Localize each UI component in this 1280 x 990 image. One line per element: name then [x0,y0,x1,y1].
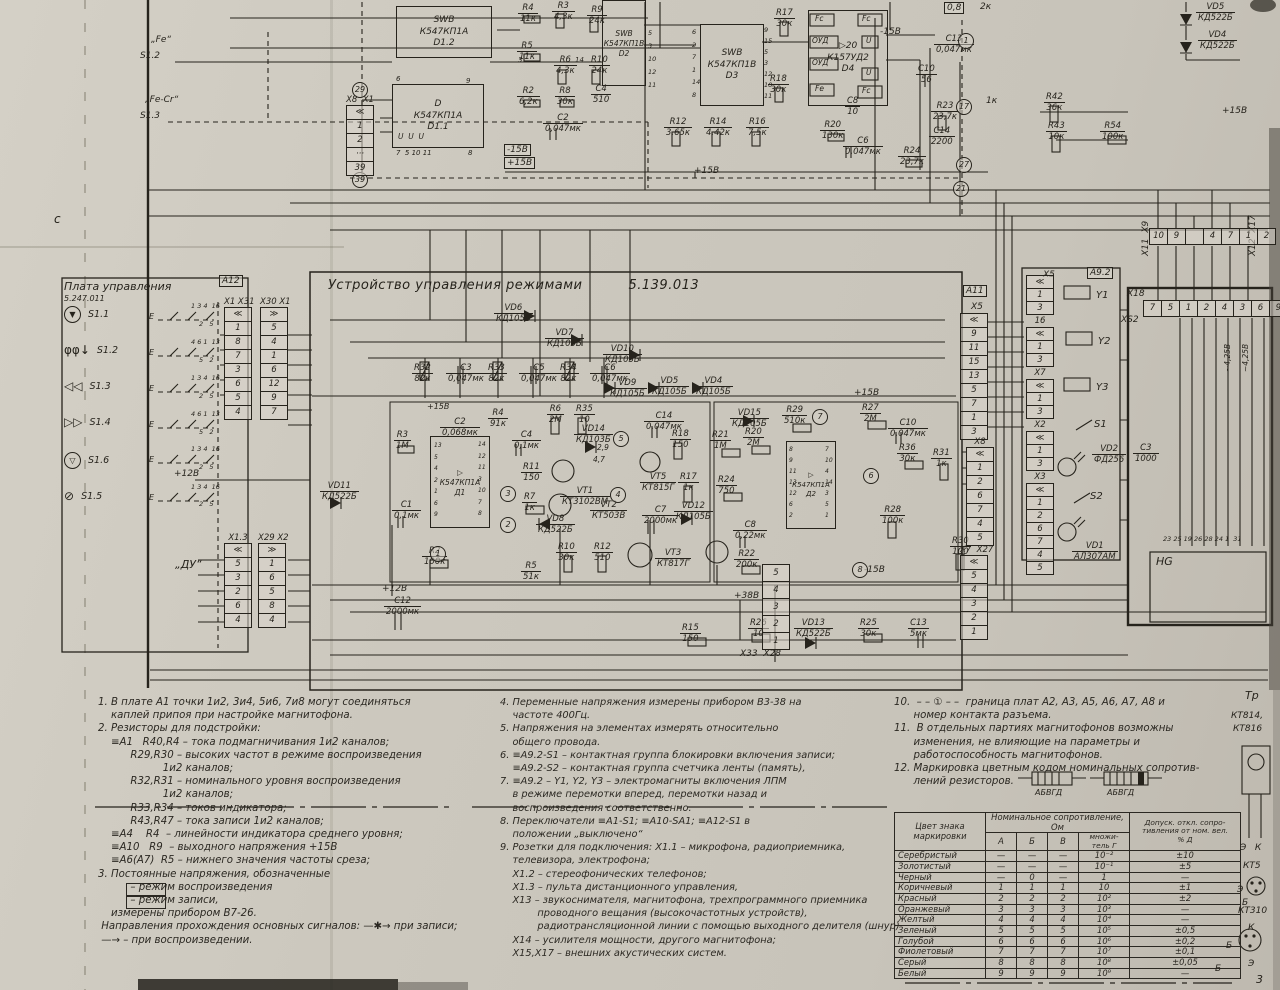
color-code-value: ±0,1 [1130,947,1241,958]
component-label: R3382к [486,363,507,384]
connector: 1094712 [1150,228,1276,245]
connector-pin: 3 [1026,457,1054,471]
connector-pin: 4 [1026,548,1054,562]
component-ref: R25 [858,618,879,629]
component-value: 0,1мк [512,441,541,451]
component-value: КТ815Г [640,483,676,493]
connector-pin: 5 [224,557,252,572]
text-label: 4 6 1 13 [191,411,220,418]
notes-column-2: 4. Переменные напряжения измерены прибор… [500,696,924,960]
component-ref: C6 [843,136,883,147]
color-code-value: 10⁷ [1079,947,1130,958]
component-label: R1830к [768,74,789,95]
component-value: 7,5к [746,128,769,138]
connector-pin: 6 [1026,522,1054,536]
component-ref: C14 [644,411,684,422]
text-label: „Fe“ [151,35,171,45]
contact-number: 1 [958,33,974,49]
connector-section-label: Х3 [1026,470,1054,484]
switch-icon: ▼ [64,306,81,323]
component-value: 30к [858,629,879,639]
color-code-value: — [1130,904,1241,915]
component-label: R171к [678,472,699,493]
color-code-value: — [1017,862,1048,873]
component-value: 30к [774,19,795,29]
switch-s1-4: ▷▷S1.4 [64,416,111,428]
text-label: S1.2 [140,51,160,61]
switch-s1-5: ⊘S1.5 [64,490,102,502]
color-code-value: ±0,5 [1130,925,1241,936]
component-ref: C5 [519,363,559,374]
notes-column-1: 1. В плате А1 точки 1и2, 3и4, 5и6, 7и8 м… [98,696,512,947]
component-ref: R54 [1100,121,1125,132]
text-label: 7 10 4 14 3 5 1 [825,444,833,521]
component-value: 82к [486,374,507,384]
record-mode-box [126,896,166,909]
ic-label-line: К157УД2 [827,53,869,64]
component-ref: C12 [384,596,421,607]
component-value: 5мк [908,629,929,639]
color-code-value: 10⁵ [1079,925,1130,936]
component-ref: VD5 [1196,2,1235,13]
connector-pin: 1 [1026,496,1054,510]
text-label: Fc [815,15,823,24]
contact-number: 17 [956,99,972,115]
text-label: Y1 [1096,290,1108,302]
connector-pin: 5 [960,383,988,398]
connector-pin: 4 [1215,300,1234,317]
text-label: 2 5 [199,393,213,400]
component-label: VD2ФД256 [1092,444,1126,465]
connector-pin [1185,228,1204,245]
component-ref: R15 [680,623,701,634]
component-ref: C14 [929,126,955,137]
color-code-value: 4 [986,915,1017,926]
component-value: 2М [547,415,564,425]
text-label: S2 [1090,491,1103,503]
text-label: К [1248,923,1254,933]
text-label: Б [1226,941,1232,951]
component-label: R71к [522,492,537,513]
connector-pin: 1 [1026,444,1054,458]
color-table-row: Фиолетовый77710⁷±0,1 [895,947,1241,958]
connector-pin: 6 [258,571,286,586]
ic-label-line: К547КП1В [708,60,757,71]
component-ref: VD10 [603,344,642,355]
component-ref: VD8 [536,514,575,525]
component-ref: VD15 [730,408,769,419]
switch-s1-3: ◁◁S1.3 [64,380,111,392]
playback-mode-box [126,883,166,896]
component-value: 1к [931,459,952,469]
connector: Х30 Х1≫54161297 [260,298,291,420]
color-table-row: Желтый44410⁴— [895,915,1241,926]
text-label: Е [149,312,154,321]
text-label: 6 [396,75,400,83]
connector-pin: 3 [762,598,790,616]
component-ref: R17 [678,472,699,483]
component-label: C135мк [908,618,929,639]
text-label: Х5 [971,302,983,312]
switch-label: S1.3 [89,381,110,392]
component-label: R3482к [558,363,579,384]
connector-name: Х30 Х1 [260,298,291,307]
component-label: R924к [587,5,607,26]
component-label: R167,5к [746,117,769,138]
connector-pin: 6 [966,489,994,504]
text-label: 1к [986,96,997,106]
component-ref: R24 [898,146,926,157]
component-label: C122000мк [384,596,421,617]
connector-pin: ≪ [346,105,374,120]
connector: ≪91115135713 [960,314,988,440]
component-ref: R3 [552,1,575,12]
component-label: R144,42к [704,117,732,138]
component-value: КТ503В [590,511,627,521]
component-value: 30к [897,454,918,464]
color-code-value: 10⁸ [1079,957,1130,968]
ic-label-line: D3 [726,71,739,82]
color-code-value: 3 [1048,904,1079,915]
ic-label-line: D4 [842,64,855,75]
contact-number: 21 [953,181,969,197]
color-code-value: 6 [986,936,1017,947]
control-board-number: 5.247.011 [64,294,105,303]
component-label: R491к [488,408,508,429]
connector-pin: ≪ [1026,327,1054,341]
component-ref: VT3 [655,548,691,559]
connector-pin: ··· [346,147,374,162]
switch-s1-6: ▽S1.6 [64,452,109,469]
text-label: Х33 Х28 [740,649,781,659]
connector-pin: 4 [224,405,252,420]
color-code-value: — [1048,862,1079,873]
text-label: КТ5 [1243,861,1261,871]
color-name: Красный [895,893,986,904]
color-name: Коричневый [895,883,986,894]
text-label: Y3 [1096,382,1108,394]
component-ref: C13 [908,618,929,629]
component-value: 100к [880,516,905,526]
color-code-value: 9 [986,968,1017,979]
component-value: 24к [589,66,610,76]
color-code-value: ±0,2 [1130,936,1241,947]
component-ref: C1 [392,500,421,511]
connector-pin: 2 [966,475,994,490]
connector-name: Х1.3 [224,534,252,543]
connector-pin: 3 [1026,353,1054,367]
connector-pin: 7 [966,503,994,518]
component-value: ФД256 [1092,455,1126,465]
component-label: R29510к [782,405,807,426]
device-doc-number: 5.139.013 [628,278,699,293]
connector-pin: 11 [960,341,988,356]
color-code-value: 1 [986,883,1017,894]
component-value: 2000мк [384,607,421,617]
component-value: 10к [1046,132,1067,142]
color-code-value: 7 [1017,947,1048,958]
component-ref: C4 [591,84,611,95]
text-label: ~4,25В [1224,344,1233,372]
connector-pin: 4 [1203,228,1222,245]
text-label: КТ814, [1231,711,1263,721]
component-value: 130к [820,131,845,141]
component-ref: C2 [440,417,480,428]
ic-label-line: К547КП1В [604,39,645,48]
ic-block: SWBК547КП1АD1.2 [396,6,492,58]
connector-name: Х7 Х27 [960,546,993,555]
color-table-subheader-mult: множи- тель Г [1079,833,1130,851]
connector-pin: 1 [762,632,790,650]
component-ref: С3 [1133,443,1159,454]
component-ref: R4 [488,408,508,419]
ic-label-line: Д1 [455,488,466,497]
switch-icon: ▽ [64,452,81,469]
text-label: +15В [427,402,449,411]
color-code-value: 10⁶ [1079,936,1130,947]
connector: ≪1316≪13Х7≪13Х2≪13Х3≪126745 [1026,276,1054,575]
connector-name: Х8 [966,438,994,447]
component-ref: VT1 [560,486,610,497]
component-value: 91к [488,419,508,429]
text-label: 1 3 4 16 [191,484,220,491]
color-code-value: 7 [1048,947,1079,958]
component-value: КД105Б [608,389,647,399]
connector-pin: 15 [960,355,988,370]
text-label: 1 3 4 16 [191,446,220,453]
connector-pin: 8 [258,599,286,614]
component-ref: R35 [574,404,595,415]
component-ref: R6 [554,55,577,66]
contact-number: 8 [852,562,868,578]
color-table-row: Зеленый55510⁵±0,5 [895,925,1241,936]
color-code-value: 6 [1048,936,1079,947]
component-ref: VD7 [545,328,584,339]
connector-pin: 9 [260,391,288,406]
component-ref: C8 [733,520,767,531]
component-value: 4,42к [704,128,732,138]
component-label: R24750 [716,475,737,496]
connector-pin: 4 [762,581,790,599]
component-value: 2М [860,414,881,424]
color-code-value: 10² [1079,893,1130,904]
connector-pin: 6 [224,599,252,614]
text-label: Х18 [1127,289,1145,299]
component-ref: VD4 [1198,30,1237,41]
text-label: Б [1215,964,1221,974]
color-code-value: — [986,862,1017,873]
connector-pin: 6 [1251,300,1270,317]
color-code-value: ±5 [1130,862,1241,873]
component-label: R62М [547,404,564,425]
color-code-value: — [986,872,1017,883]
component-ref: R5 [521,561,541,572]
component-label: C100,047мк [888,418,928,439]
component-label: R3510 [574,404,595,425]
text-label: АБВГД [1107,788,1134,797]
component-label: R311к [931,448,952,469]
color-code-value: 1 [1017,883,1048,894]
connector-name: Х8 Х1 [346,96,374,105]
component-label: VD10КД105Б [603,344,642,365]
component-label: VD7КД105Б [545,328,584,349]
component-value: 0,047мк [446,374,486,384]
text-label: 3 [1256,974,1263,987]
component-ref: R5 [517,41,537,52]
ic-label-line: Д2 [806,490,816,498]
text-label: Е [149,455,154,464]
connector-pin: 6 [224,377,252,392]
component-value: 1к [678,483,699,493]
connector-pin: 2 [346,133,374,148]
connector-pin: 3 [1026,405,1054,419]
component-ref: R12 [664,117,692,128]
color-code-value: 0 [1017,872,1048,883]
component-label: R31М [394,430,411,451]
component-label: VD5КД522Б [1196,2,1235,23]
component-label: C60,047мк [843,136,883,157]
component-label: C4510 [591,84,611,105]
switch-s1-2: φφ↓S1.2 [64,344,118,356]
text-label: U U U [398,133,424,142]
text-label: S1 [1094,419,1107,431]
component-value: 0,047мк [543,124,583,134]
connector-section-label: Х7 [1026,366,1054,380]
ic-block: SWBК547КП1ВD3 [700,24,764,106]
component-label: R411к [518,3,538,24]
connector-pin: 6 [260,363,288,378]
component-value: 11к [518,14,538,24]
component-ref: R36 [897,443,918,454]
component-value: КД105Б [603,355,642,365]
connector-pin: ≪ [1026,275,1054,289]
component-value: КД105Б [494,314,533,324]
connector-pin: 4 [960,583,988,598]
connector-pin: 2 [762,615,790,633]
contact-number: 4 [610,487,626,503]
switch-label: S1.1 [88,309,109,320]
component-label: R3282к [412,363,433,384]
color-code-value: 10⁻² [1079,851,1130,862]
contact-number: 3 [500,486,516,502]
color-code-value: 10³ [1079,904,1130,915]
color-code-value: 9 [1048,968,1079,979]
color-code-value: — [1130,968,1241,979]
connector-pin: 3 [960,597,988,612]
switch-icon: ⊘ [64,490,74,502]
component-label: R830к [555,86,575,107]
component-value: КД522Б [1196,13,1235,23]
component-ref: C10 [888,418,928,429]
component-value: 0,047мк [888,429,928,439]
connector-pin: 7 [224,349,252,364]
component-ref: VT5 [640,472,676,483]
text-label: 2 5 [199,321,213,328]
component-ref: R11 [521,462,542,473]
connector-pin: 1 [966,461,994,476]
connector-pin: 5 [224,391,252,406]
component-label: R123,65к [664,117,692,138]
component-label: C1056 [916,64,937,85]
color-name: Фиолетовый [895,947,986,958]
text-label: 4 6 1 13 [191,339,220,346]
component-value: 510 [591,95,611,105]
color-code-value: 6 [1017,936,1048,947]
component-ref: VD9 [608,378,647,389]
component-value: КД105Б [545,339,584,349]
switch-icon: ▷▷ [64,416,82,428]
ic-label-line: ▷ [808,471,813,479]
text-label: Е [149,420,154,429]
ic-label-line: К547КП1А [420,27,469,38]
text-label: 4,7 [593,456,605,465]
component-label: R22200к [734,549,759,570]
switch-icon: ◁◁ [64,380,82,392]
component-value: КД522Б [536,525,575,535]
component-label: VT3КТ817Г [655,548,691,569]
ic-label-line: D2 [619,49,630,58]
color-table-row: Серый88810⁸±0,05 [895,957,1241,968]
component-ref: R31 [931,448,952,459]
contact-number: 6 [863,468,879,484]
component-value: 30к [555,97,575,107]
ic-label-line: ▷ [457,468,463,477]
connector-section-label: Х2 [1026,418,1054,432]
connector-pin: 5 [762,564,790,582]
text-label: КТ816 [1233,724,1262,734]
text-label: Fc [862,15,870,24]
component-ref: C3 [446,363,486,374]
component-value: 510 [592,553,613,563]
color-name: Оранжевый [895,904,986,915]
color-name: Желтый [895,915,986,926]
connector-pin: 5 [260,321,288,336]
color-code-value: 9 [1017,968,1048,979]
switch-label: S1.6 [88,455,109,466]
connector: Х8≪126745 [966,438,994,546]
color-code-value: 5 [1048,925,1079,936]
connector: Х29 Х2≫16584 [258,534,289,628]
component-ref: R23 [931,101,959,112]
component-value: 150 [670,440,691,450]
color-code-value: 1 [1048,883,1079,894]
color-code-value: 8 [1048,957,1079,968]
ic-label-line: D1.2 [433,38,454,49]
color-table-header-resistance: Номинальное сопротивление, Ом [986,813,1130,833]
component-ref: R20 [743,427,764,438]
component-ref: R10 [556,542,577,553]
component-ref: R24 [716,475,737,486]
text-label: U [866,37,872,46]
text-label: „ДУ“ [175,559,202,572]
connector-pin: 5 [1026,561,1054,575]
component-label: C142200 [929,126,955,147]
component-label: VT5КТ815Г [640,472,676,493]
color-code-value: 5 [1017,925,1048,936]
component-value: 510к [782,416,807,426]
connector-pin: 1 [260,349,288,364]
text-label: 2к [980,2,991,12]
component-label: R2423,7к [898,146,926,167]
component-value: КД103Б [574,435,613,445]
color-table-row: Красный22210²±2 [895,893,1241,904]
component-value: 10 [845,107,860,117]
component-value: 750 [716,486,737,496]
color-code-value: — [1048,872,1079,883]
component-value: 0,047мк [519,374,559,384]
color-name: Голубой [895,936,986,947]
text-label: ~4,25В [1242,344,1251,372]
